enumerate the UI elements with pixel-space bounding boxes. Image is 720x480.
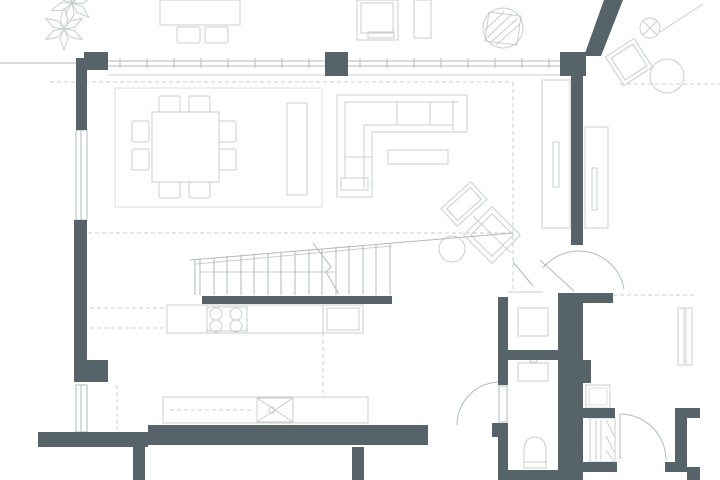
wall <box>148 425 428 445</box>
wall <box>583 360 591 383</box>
dining-chair <box>132 149 149 170</box>
cooktop-burner <box>210 308 222 320</box>
terrace-lounger-cushion <box>361 3 393 33</box>
door-swing-arc <box>620 414 666 460</box>
cooktop-burner <box>230 320 242 332</box>
terrace-armchair <box>605 38 652 85</box>
wardrobe-handle <box>592 168 597 210</box>
terrace-slab <box>414 0 431 38</box>
wall <box>675 408 700 418</box>
hall-fixture-inner <box>589 388 607 405</box>
counter-sink <box>327 308 359 330</box>
cooktop-burner <box>230 308 242 320</box>
wall <box>675 418 687 462</box>
terrace-lounger <box>357 0 398 40</box>
terrace-diagonal-line <box>660 4 703 32</box>
wall <box>74 360 108 382</box>
radiator <box>678 308 684 365</box>
side-table <box>439 236 465 262</box>
terrace-chair <box>205 27 228 43</box>
wardrobe-handle <box>553 142 559 187</box>
kitchen-counter <box>167 305 363 333</box>
wall <box>560 52 586 76</box>
dining-chair <box>132 121 149 142</box>
wall <box>325 52 348 76</box>
door-swing-arc <box>543 251 624 289</box>
door-leaf <box>540 260 574 291</box>
wall <box>492 423 508 437</box>
appliance-hatch <box>606 436 614 452</box>
wall <box>571 76 583 245</box>
floor-plan-svg <box>0 0 720 480</box>
wall <box>498 297 508 385</box>
sofa-outline <box>337 95 467 197</box>
door-leaf <box>513 262 533 286</box>
door-panel <box>499 386 507 422</box>
wall <box>583 462 617 472</box>
plant-star-icon <box>46 8 82 50</box>
stair-break-line <box>313 243 339 294</box>
wall <box>133 447 145 480</box>
dining-chair <box>159 182 180 198</box>
dining-chair <box>219 149 236 170</box>
terrace-table <box>160 0 240 25</box>
wall-diagonal <box>584 0 623 56</box>
dining-chair <box>219 121 236 142</box>
appliance-hatch <box>606 450 614 462</box>
wall <box>38 432 148 447</box>
wall <box>665 462 687 472</box>
toilet <box>524 437 546 468</box>
wall <box>202 296 392 304</box>
appliance <box>590 418 615 462</box>
terrace-chair <box>177 27 200 43</box>
dining-chair <box>159 96 180 112</box>
coffee-table <box>388 150 448 164</box>
terrace-round-table <box>650 59 684 93</box>
wardrobe-cabinet <box>542 80 570 228</box>
dining-chair <box>189 182 210 198</box>
dining-chair <box>189 96 210 112</box>
floor-plan <box>0 0 720 480</box>
washbasin <box>518 363 548 381</box>
wall <box>352 447 364 480</box>
radiator <box>686 308 692 365</box>
wall <box>687 467 700 480</box>
wall <box>498 470 583 480</box>
wall <box>558 293 583 480</box>
shower-tray <box>518 308 548 336</box>
cooktop-burner <box>210 320 222 332</box>
wall <box>74 220 87 360</box>
wall <box>84 52 108 70</box>
appliance-hatch <box>606 420 614 436</box>
sideboard <box>287 103 307 195</box>
wall <box>76 58 87 130</box>
wall <box>508 350 558 360</box>
wall <box>583 408 615 418</box>
door-swing-arc <box>457 382 500 425</box>
armchair-cushion <box>447 187 481 220</box>
armchair <box>441 182 487 227</box>
dining-table <box>152 112 219 182</box>
